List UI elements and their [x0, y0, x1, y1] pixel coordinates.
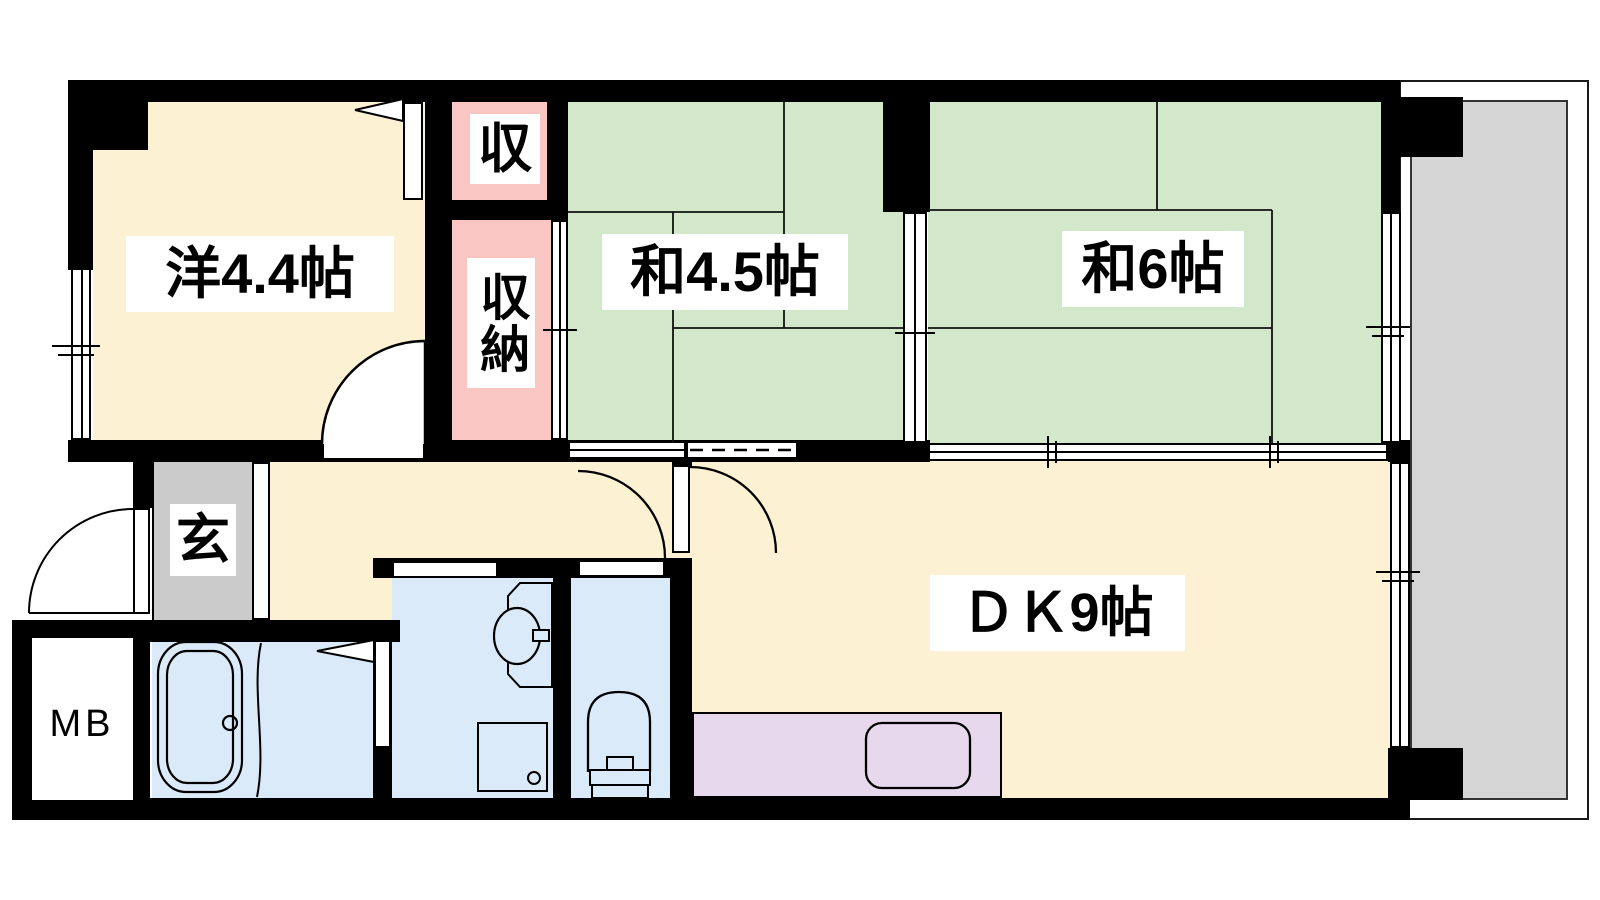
- western-door-arc: [322, 341, 425, 444]
- floor-plan: 洋4.4帖 和4.5帖 和6帖 ＤＫ9帖 収 収納 玄 MB: [0, 0, 1600, 900]
- hall-door-arc: [690, 467, 776, 553]
- tatami45-label: 和4.5帖: [602, 234, 848, 310]
- window-ticks: [52, 327, 1420, 581]
- toilet-fixture: [588, 692, 650, 798]
- closet-small-label: 収: [470, 114, 540, 184]
- toilet-door-arc: [578, 471, 665, 558]
- bath-partition-curve: [257, 643, 261, 797]
- linework-layer: [0, 0, 1600, 900]
- closet-small-door-triangle: [355, 99, 403, 121]
- vanity-sink: [494, 583, 552, 687]
- entrance-label: 玄: [170, 504, 236, 576]
- bathroom-door-triangle: [317, 640, 374, 662]
- bathtub: [158, 642, 242, 792]
- dk-label: ＤＫ9帖: [930, 575, 1185, 651]
- western-room-label: 洋4.4帖: [126, 236, 394, 312]
- washing-machine-pan: [478, 723, 547, 791]
- entrance-door-arc: [29, 509, 133, 613]
- closet-tall-label: 収納: [467, 258, 535, 388]
- kitchen-sink: [866, 723, 970, 788]
- tatami6-label: 和6帖: [1062, 231, 1244, 307]
- meter-box-label: MB: [38, 701, 126, 749]
